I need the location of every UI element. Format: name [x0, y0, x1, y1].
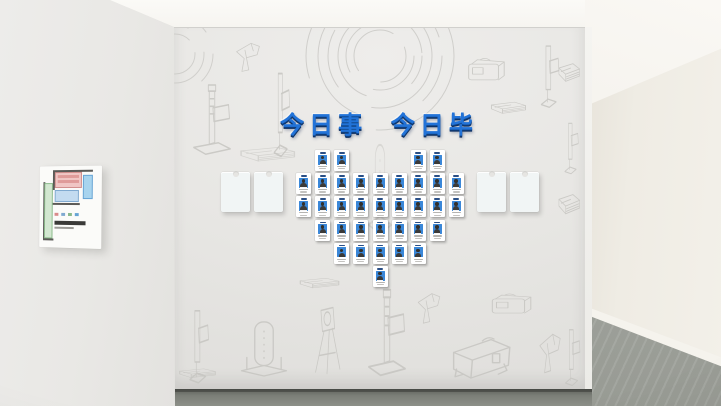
card-header-mark	[396, 198, 402, 200]
id-photo	[414, 178, 423, 188]
blank-pocket	[221, 172, 250, 212]
task-card	[334, 173, 349, 194]
card-header-mark	[396, 222, 402, 224]
id-photo	[452, 178, 461, 188]
task-card	[411, 196, 426, 217]
card-text-line	[338, 238, 345, 239]
card-text-line	[319, 215, 326, 216]
card-header-mark	[320, 152, 326, 154]
card-text-line	[377, 215, 384, 216]
card-text-line	[434, 191, 441, 192]
card-text-line	[395, 235, 404, 236]
card-header-mark	[339, 245, 345, 247]
task-card	[392, 220, 407, 241]
card-header-mark	[396, 175, 402, 177]
card-text-line	[414, 189, 423, 190]
card-text-line	[415, 238, 422, 239]
task-card	[296, 196, 311, 217]
task-card	[411, 150, 426, 171]
card-text-line	[415, 168, 422, 169]
task-card	[315, 196, 330, 217]
id-photo	[433, 155, 442, 165]
id-photo	[414, 247, 423, 257]
evacuation-plan-frame	[39, 166, 102, 250]
task-card	[315, 150, 330, 171]
card-text-line	[396, 238, 403, 239]
card-text-line	[415, 215, 422, 216]
card-text-line	[300, 215, 307, 216]
card-text-line	[319, 168, 326, 169]
showroom-scene: 今日事 今日毕	[0, 0, 721, 406]
task-card	[411, 173, 426, 194]
task-card	[334, 220, 349, 241]
card-text-line	[453, 191, 460, 192]
main-culture-wall: 今日事 今日毕	[173, 27, 585, 391]
id-photo	[376, 247, 385, 257]
card-text-line	[433, 189, 442, 190]
card-header-mark	[320, 175, 326, 177]
card-header-mark	[358, 245, 364, 247]
card-header-mark	[434, 198, 440, 200]
card-text-line	[395, 212, 404, 213]
card-header-mark	[434, 175, 440, 177]
card-text-line	[377, 284, 384, 285]
card-header-mark	[339, 222, 345, 224]
card-header-mark	[453, 198, 459, 200]
task-card	[353, 196, 368, 217]
id-photo	[433, 201, 442, 211]
task-card	[353, 243, 368, 264]
card-header-mark	[415, 175, 421, 177]
card-text-line	[357, 261, 364, 262]
id-photo	[356, 224, 365, 234]
task-card	[296, 173, 311, 194]
card-text-line	[338, 191, 345, 192]
id-photo	[318, 155, 327, 165]
card-text-line	[337, 212, 346, 213]
task-card	[353, 173, 368, 194]
card-text-line	[395, 259, 404, 260]
task-card	[430, 150, 445, 171]
plan-zone-green	[44, 183, 53, 238]
blank-pocket	[510, 172, 539, 212]
id-photo	[376, 178, 385, 188]
card-header-mark	[339, 152, 345, 154]
card-header-mark	[434, 152, 440, 154]
id-photo	[337, 155, 346, 165]
task-card	[411, 243, 426, 264]
card-text-line	[376, 212, 385, 213]
hallway	[585, 0, 721, 406]
legend-swatch	[75, 213, 79, 216]
card-text-line	[338, 168, 345, 169]
task-card	[373, 266, 388, 287]
card-text-line	[319, 238, 326, 239]
task-card	[430, 173, 445, 194]
card-text-line	[357, 238, 364, 239]
card-header-mark	[339, 175, 345, 177]
card-header-mark	[358, 175, 364, 177]
blank-pocket	[254, 172, 283, 212]
card-text-line	[338, 261, 345, 262]
id-photo	[318, 178, 327, 188]
card-text-line	[377, 238, 384, 239]
front-floor	[173, 389, 592, 406]
plan-legend	[55, 213, 79, 216]
id-photo	[337, 178, 346, 188]
task-card	[392, 173, 407, 194]
card-header-mark	[415, 222, 421, 224]
id-photo	[414, 224, 423, 234]
card-text-line	[376, 259, 385, 260]
card-text-line	[356, 189, 365, 190]
card-text-line	[357, 215, 364, 216]
id-photo	[376, 224, 385, 234]
task-card	[430, 196, 445, 217]
card-text-line	[452, 189, 461, 190]
task-card	[411, 220, 426, 241]
card-text-line	[356, 212, 365, 213]
card-text-line	[452, 212, 461, 213]
card-header-mark	[415, 245, 421, 247]
id-photo	[337, 247, 346, 257]
card-header-mark	[377, 198, 383, 200]
id-photo	[356, 178, 365, 188]
id-photo	[299, 178, 308, 188]
task-card	[373, 196, 388, 217]
card-header-mark	[358, 222, 364, 224]
id-photo	[433, 224, 442, 234]
card-header-mark	[415, 152, 421, 154]
card-text-line	[414, 235, 423, 236]
plan-zone-blue	[55, 190, 79, 202]
task-card	[334, 196, 349, 217]
card-text-line	[356, 235, 365, 236]
card-text-line	[433, 166, 442, 167]
id-photo	[337, 201, 346, 211]
plan-wall-line	[53, 203, 80, 205]
legend-swatch	[68, 213, 72, 216]
card-header-mark	[320, 198, 326, 200]
ceiling-crease-line	[108, 0, 175, 27]
card-text-line	[376, 189, 385, 190]
card-header-mark	[301, 175, 307, 177]
card-header-mark	[377, 175, 383, 177]
card-text-line	[434, 168, 441, 169]
id-photo	[299, 201, 308, 211]
card-text-line	[319, 191, 326, 192]
card-text-line	[395, 189, 404, 190]
card-text-line	[337, 235, 346, 236]
card-text-line	[453, 215, 460, 216]
card-text-line	[318, 189, 327, 190]
card-text-line	[377, 191, 384, 192]
card-header-mark	[377, 268, 383, 270]
legend-swatch	[55, 213, 59, 216]
card-text-line	[434, 238, 441, 239]
card-text-line	[300, 191, 307, 192]
plan-zone-cyan	[83, 175, 93, 199]
task-card	[392, 243, 407, 264]
main-wall-side-face	[585, 27, 592, 391]
task-card	[334, 243, 349, 264]
card-text-line	[376, 282, 385, 283]
task-card	[315, 173, 330, 194]
task-card	[353, 220, 368, 241]
card-text-line	[414, 259, 423, 260]
id-photo	[395, 247, 404, 257]
card-header-mark	[377, 245, 383, 247]
card-text-line	[318, 212, 327, 213]
card-text-line	[396, 191, 403, 192]
id-photo	[356, 201, 365, 211]
card-text-line	[377, 261, 384, 262]
card-header-mark	[377, 222, 383, 224]
task-card	[373, 173, 388, 194]
id-photo	[433, 178, 442, 188]
card-text-line	[414, 166, 423, 167]
id-photo	[395, 224, 404, 234]
card-text-line	[376, 235, 385, 236]
card-header-mark	[453, 175, 459, 177]
card-header-mark	[301, 198, 307, 200]
card-header-mark	[434, 222, 440, 224]
id-photo	[395, 201, 404, 211]
card-text-line	[356, 259, 365, 260]
task-card	[449, 173, 464, 194]
task-card	[449, 196, 464, 217]
card-text-line	[338, 215, 345, 216]
task-card	[373, 243, 388, 264]
card-text-line	[433, 235, 442, 236]
card-text-line	[318, 235, 327, 236]
card-text-line	[415, 191, 422, 192]
card-header-mark	[358, 198, 364, 200]
id-photo	[395, 178, 404, 188]
card-text-line	[415, 261, 422, 262]
id-photo	[452, 201, 461, 211]
plan-title-text	[54, 221, 85, 226]
card-header-mark	[415, 198, 421, 200]
card-text-line	[337, 166, 346, 167]
card-text-line	[299, 212, 308, 213]
task-card	[392, 196, 407, 217]
id-photo	[318, 224, 327, 234]
id-photo	[414, 201, 423, 211]
card-header-mark	[339, 198, 345, 200]
legend-swatch	[61, 213, 65, 216]
task-card	[334, 150, 349, 171]
card-text-line	[433, 212, 442, 213]
card-text-line	[396, 261, 403, 262]
card-text-line	[299, 189, 308, 190]
id-photo	[376, 271, 385, 281]
task-card	[430, 220, 445, 241]
card-text-line	[414, 212, 423, 213]
task-card	[315, 220, 330, 241]
id-photo	[337, 224, 346, 234]
blank-pocket	[477, 172, 506, 212]
card-text-line	[357, 191, 364, 192]
id-photo	[376, 201, 385, 211]
id-photo	[356, 247, 365, 257]
card-text-line	[337, 259, 346, 260]
card-text-line	[434, 215, 441, 216]
card-header-mark	[320, 222, 326, 224]
card-header-mark	[396, 245, 402, 247]
card-text-line	[396, 215, 403, 216]
plan-zone-red	[55, 172, 82, 188]
card-text-line	[337, 189, 346, 190]
id-photo	[318, 201, 327, 211]
card-text-line	[318, 166, 327, 167]
id-photo	[414, 155, 423, 165]
task-card	[373, 220, 388, 241]
